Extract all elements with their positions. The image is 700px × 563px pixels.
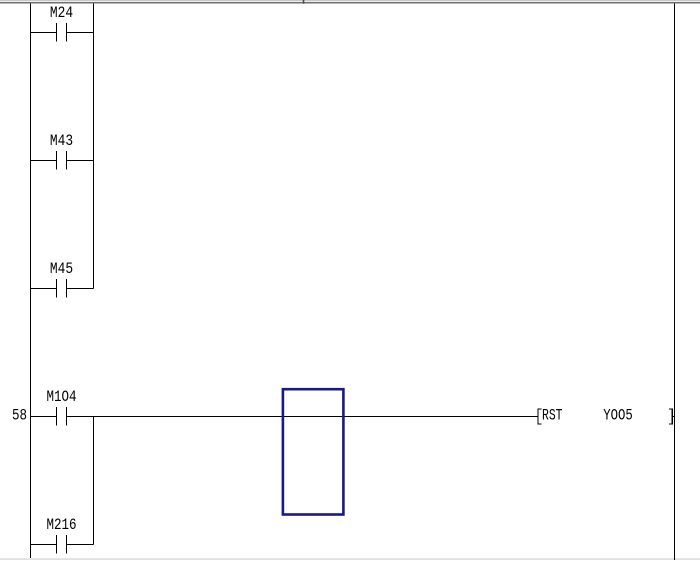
svg-text:M1O4: M1O4 <box>47 388 77 406</box>
svg-text:M216: M216 <box>47 516 77 534</box>
svg-text:M45: M45 <box>50 260 73 278</box>
svg-text:58: 58 <box>12 406 27 424</box>
svg-text:M24: M24 <box>50 4 73 22</box>
svg-text:RST: RST <box>542 406 563 424</box>
svg-text:M43: M43 <box>50 132 73 150</box>
svg-text:YOO5: YOO5 <box>603 406 633 424</box>
